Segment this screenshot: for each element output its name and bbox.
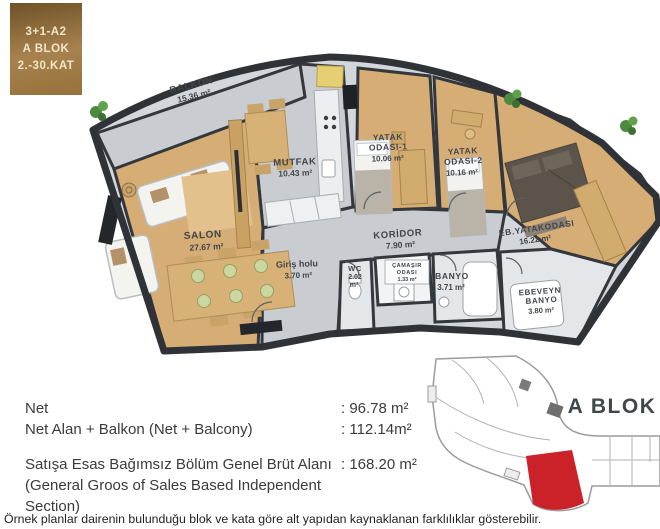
gross-area-value: : 168.20 m² bbox=[341, 454, 417, 475]
stool-yatak2 bbox=[465, 129, 475, 139]
room-label-camasir-2: ODASI bbox=[397, 270, 417, 276]
side-table bbox=[122, 183, 136, 197]
plant-icon bbox=[620, 117, 638, 136]
keyplan: A BLOK bbox=[428, 356, 660, 511]
room-area-banyo: 3.71 m² bbox=[437, 283, 465, 292]
room-area-wc: 2.02 bbox=[348, 274, 362, 281]
area-summary: Net : 96.78 m² Net Alan + Balkon (Net + … bbox=[25, 398, 437, 517]
room-area-yatak2: 10.16 m² bbox=[446, 167, 479, 178]
room-area-mutfak: 10.43 m² bbox=[278, 167, 313, 178]
floorplan-page: 3+1-A2 A BLOK 2.-30.KAT bbox=[0, 0, 660, 529]
gross-area-label: Satışa Esas Bağımsız Bölüm Genel Brüt Al… bbox=[25, 454, 341, 475]
net-area-row: Net : 96.78 m² bbox=[25, 398, 437, 419]
gross-area-sub-row: (General Groos of Sales Based Independen… bbox=[25, 475, 437, 517]
sink-banyo bbox=[439, 297, 449, 307]
room-area-koridor: 7.90 m² bbox=[386, 239, 416, 251]
gross-area-row: Satışa Esas Bağımsız Bölüm Genel Brüt Al… bbox=[25, 454, 437, 475]
net-balcony-row: Net Alan + Balkon (Net + Balcony) : 112.… bbox=[25, 419, 437, 440]
kitchen-counter bbox=[314, 89, 344, 202]
net-area-label: Net bbox=[25, 398, 341, 419]
keyplan-block-label: A BLOK bbox=[568, 395, 657, 418]
room-label-yatak2-2: ODASI-2 bbox=[444, 155, 483, 167]
net-area-value: : 96.78 m² bbox=[341, 398, 409, 419]
washing-machine bbox=[394, 283, 414, 301]
room-area-camasir: 1.33 m² bbox=[398, 276, 417, 283]
room-label-banyo: BANYO bbox=[435, 271, 469, 281]
net-balcony-label: Net Alan + Balkon (Net + Balcony) bbox=[25, 419, 341, 440]
doormat bbox=[317, 66, 344, 88]
room-area-ebbanyo: 3.80 m² bbox=[528, 305, 555, 316]
disclaimer-text: Örnek planlar dairenin bulunduğu blok ve… bbox=[4, 512, 659, 526]
room-label-salon: SALON bbox=[184, 229, 223, 242]
room-area-yatak1: 10.06 m² bbox=[371, 153, 404, 163]
room-label-giris: Giriş holu bbox=[276, 258, 318, 269]
room-area-giris: 3.70 m² bbox=[284, 270, 312, 280]
gross-area-sub-label: (General Groos of Sales Based Independen… bbox=[25, 475, 341, 517]
net-balcony-value: : 112.14m² bbox=[341, 419, 412, 440]
room-area-salon: 27.67 m² bbox=[189, 241, 224, 253]
room-label-wc: WC bbox=[348, 264, 362, 273]
plant-icon bbox=[90, 101, 108, 121]
room-area-wc-unit: m² bbox=[350, 282, 359, 289]
room-label-camasir: ÇAMAŞIR bbox=[392, 263, 422, 269]
room-label-yatak1-2: ODASI-1 bbox=[369, 141, 408, 152]
structural-column bbox=[342, 85, 357, 110]
